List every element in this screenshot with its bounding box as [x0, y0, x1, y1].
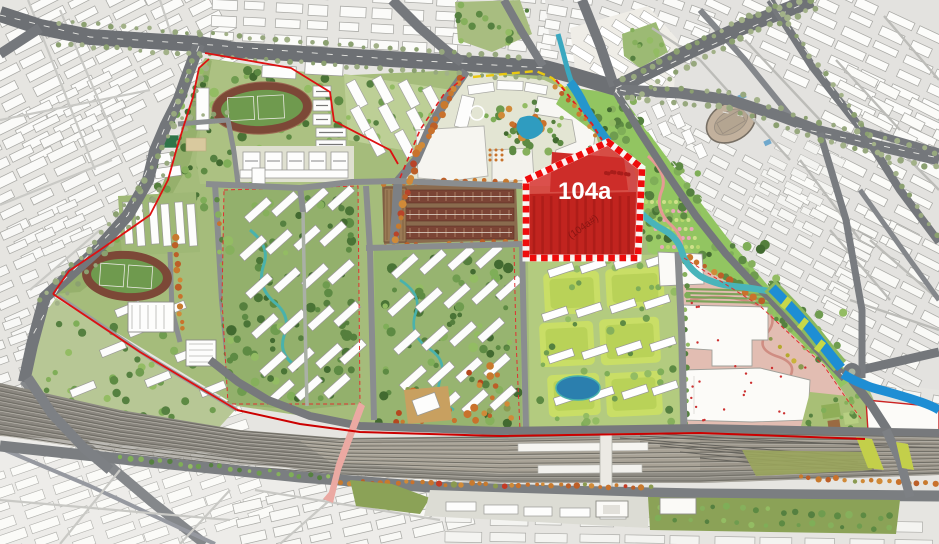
svg-text:104a: 104a — [558, 178, 612, 205]
